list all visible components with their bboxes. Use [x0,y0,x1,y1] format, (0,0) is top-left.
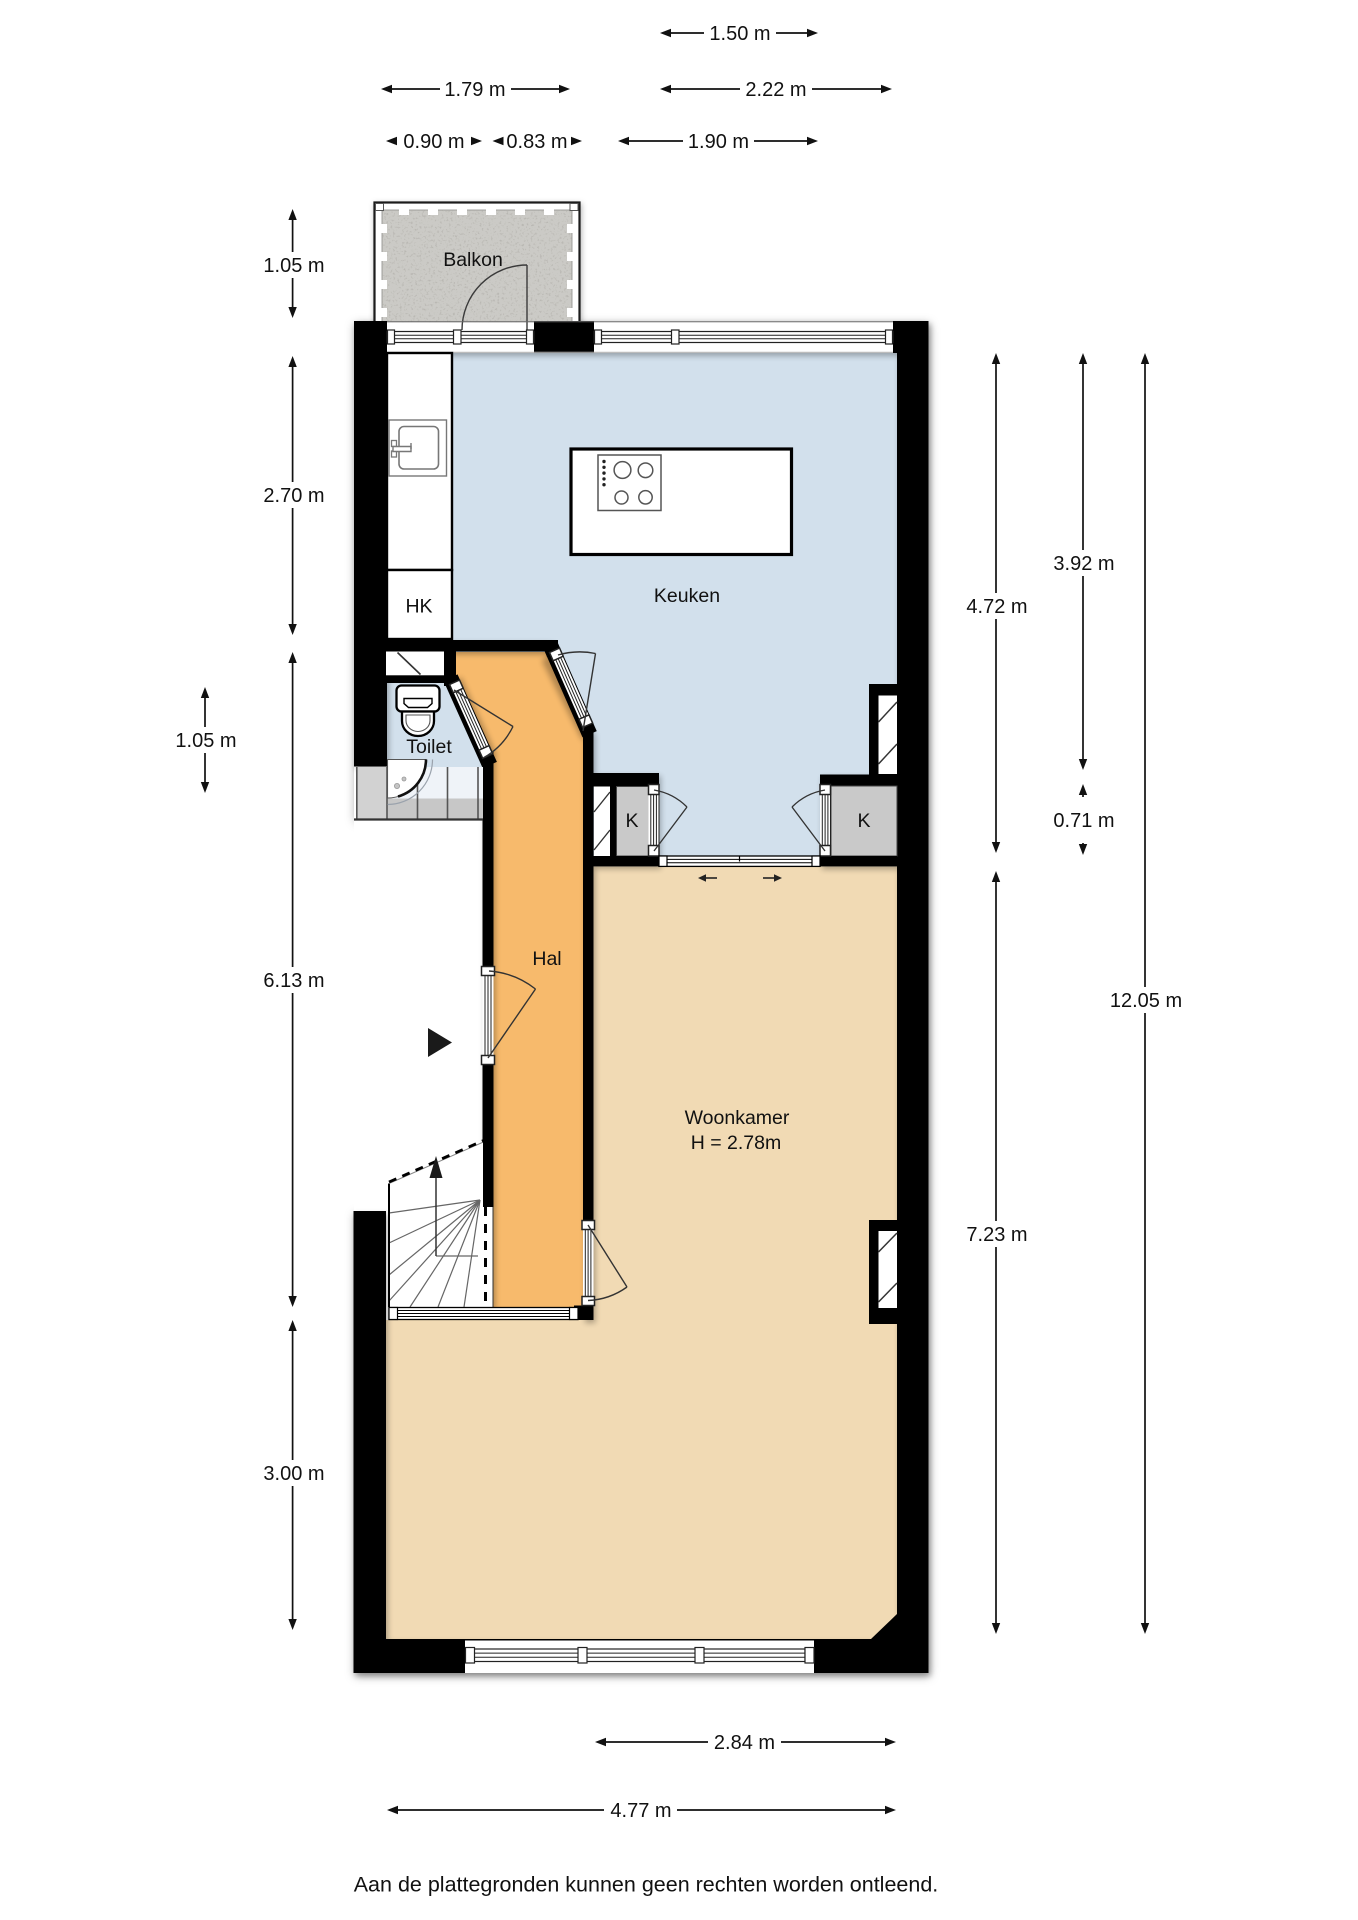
svg-text:1.90 m: 1.90 m [688,131,749,153]
svg-text:K: K [625,810,638,832]
svg-text:1.05 m: 1.05 m [263,255,324,277]
svg-text:0.90 m: 0.90 m [403,131,464,153]
svg-text:Hal: Hal [532,948,561,970]
svg-text:1.50 m: 1.50 m [709,23,770,45]
svg-text:4.77 m: 4.77 m [610,1800,671,1822]
svg-text:3.00 m: 3.00 m [263,1463,324,1485]
svg-text:Keuken: Keuken [654,585,720,607]
svg-text:2.84 m: 2.84 m [714,1732,775,1754]
svg-text:4.72 m: 4.72 m [966,596,1027,618]
svg-text:3.92 m: 3.92 m [1053,553,1114,575]
svg-text:H = 2.78m: H = 2.78m [691,1132,782,1154]
svg-text:6.13 m: 6.13 m [263,970,324,992]
svg-text:12.05 m: 12.05 m [1110,990,1182,1012]
svg-text:Toilet: Toilet [406,736,452,758]
svg-text:HK: HK [405,595,432,617]
svg-text:Balkon: Balkon [443,249,503,271]
svg-text:1.05 m: 1.05 m [175,730,236,752]
svg-text:K: K [857,810,870,832]
svg-text:7.23 m: 7.23 m [966,1224,1027,1246]
svg-text:2.70 m: 2.70 m [263,485,324,507]
svg-text:1.79 m: 1.79 m [444,79,505,101]
svg-text:Aan de plattegronden kunnen ge: Aan de plattegronden kunnen geen rechten… [354,1873,939,1897]
svg-text:2.22 m: 2.22 m [745,79,806,101]
svg-text:0.83 m: 0.83 m [506,131,567,153]
svg-text:0.71 m: 0.71 m [1053,810,1114,832]
svg-text:Woonkamer: Woonkamer [685,1107,790,1129]
